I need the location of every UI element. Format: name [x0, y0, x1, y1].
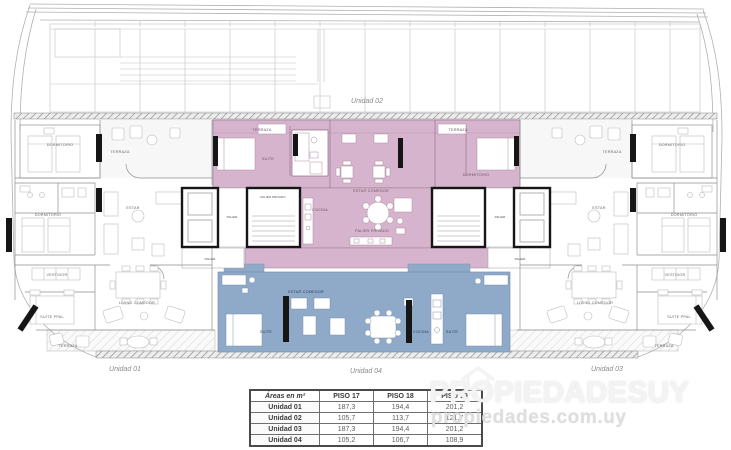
- table-row-unidad03: Unidad 03 187,3 194,4 201,2: [250, 424, 482, 435]
- label-dormitorio: DORMITORIO: [463, 173, 490, 177]
- areas-table-col-piso19: PISO 19: [428, 390, 483, 402]
- label-suite-ppal: SUITE PPAL: [40, 315, 64, 319]
- floorplan-page: DORMITORIO TERRAZA ESTAR DORMITORIO VEST…: [0, 0, 731, 450]
- label-palier: PALIER: [205, 257, 217, 261]
- unit04-label: Unidad 04: [350, 368, 382, 375]
- unit-name-cell: Unidad 03: [250, 424, 320, 435]
- label-dormitorio: DORMITORIO: [35, 213, 62, 217]
- label-suite-ppal: SUITE PPAL: [667, 315, 691, 319]
- label-terraza: TERRAZA: [58, 344, 77, 348]
- label-estar-comedor: ESTAR COMEDOR: [353, 189, 389, 193]
- table-row-unidad04: Unidad 04 105,2 106,7 108,9: [250, 435, 482, 447]
- label-palier: PALIER: [515, 257, 527, 261]
- unit-name-cell: Unidad 01: [250, 402, 320, 413]
- areas-table-title-cell: Áreas en m²: [250, 390, 320, 402]
- unit-name-cell: Unidad 02: [250, 413, 320, 424]
- table-row-unidad02: Unidad 02 105,7 113,7 121,7: [250, 413, 482, 424]
- label-vestidor: VESTIDOR: [664, 273, 685, 277]
- label-terraza: TERRAZA: [448, 128, 467, 132]
- areas-table-grid: Áreas en m² PISO 17 PISO 18 PISO 19 Unid…: [249, 389, 483, 447]
- areas-table-col-piso17: PISO 17: [320, 390, 374, 402]
- label-estar-comedor: ESTAR COMEDOR: [288, 290, 324, 294]
- area-value-cell: 201,2: [428, 402, 483, 413]
- label-terraza: TERRAZA: [602, 150, 621, 154]
- area-value-cell: 201,2: [428, 424, 483, 435]
- unit-name-cell: Unidad 04: [250, 435, 320, 447]
- label-cocina: COCINA: [413, 330, 429, 334]
- unit04-area: [218, 264, 510, 352]
- area-value-cell: 106,7: [374, 435, 428, 447]
- label-terraza: TERRAZA: [110, 150, 129, 154]
- unit01-label: Unidad 01: [109, 366, 141, 373]
- area-value-cell: 194,4: [374, 402, 428, 413]
- unit02-label: Unidad 02: [351, 98, 383, 105]
- label-estar: ESTAR: [592, 206, 605, 210]
- label-terraza: TERRAZA: [654, 344, 673, 348]
- label-cocina: COCINA: [312, 208, 328, 212]
- area-value-cell: 121,7: [428, 413, 483, 424]
- label-living-comedor: LIVING COMEDOR: [577, 301, 613, 305]
- label-palier: PALIER: [227, 215, 239, 219]
- label-dormitorio: DORMITORIO: [47, 143, 74, 147]
- area-value-cell: 194,4: [374, 424, 428, 435]
- area-value-cell: 108,9: [428, 435, 483, 447]
- label-suite: SUITE: [262, 157, 274, 161]
- area-value-cell: 113,7: [374, 413, 428, 424]
- label-dormitorio: DORMITORIO: [659, 143, 686, 147]
- unit03-label: Unidad 03: [591, 366, 623, 373]
- area-value-cell: 105,7: [320, 413, 374, 424]
- label-suite: SUITE: [446, 330, 458, 334]
- areas-table-header-row: Áreas en m² PISO 17 PISO 18 PISO 19: [250, 390, 482, 402]
- area-value-cell: 187,3: [320, 424, 374, 435]
- label-estar: ESTAR: [126, 206, 139, 210]
- label-palier-privado: PALIER PRIVADO: [355, 229, 389, 233]
- label-suite: SUITE: [260, 330, 272, 334]
- label-dormitorio: DORMITORIO: [671, 213, 698, 217]
- areas-table: Áreas en m² PISO 17 PISO 18 PISO 19 Unid…: [249, 389, 483, 447]
- label-terraza: TERRAZA: [252, 128, 271, 132]
- table-row-unidad01: Unidad 01 187,3 194,4 201,2: [250, 402, 482, 413]
- floorplan-drawing: DORMITORIO TERRAZA ESTAR DORMITORIO VEST…: [0, 0, 731, 450]
- areas-table-col-piso18: PISO 18: [374, 390, 428, 402]
- area-value-cell: 105,2: [320, 435, 374, 447]
- label-palier-privado: PALIER PRIVADO: [260, 195, 286, 199]
- label-vestidor: VESTIDOR: [46, 273, 67, 277]
- label-palier: PALIER: [495, 215, 507, 219]
- label-living-comedor: LIVING COMEDOR: [119, 301, 155, 305]
- area-value-cell: 187,3: [320, 402, 374, 413]
